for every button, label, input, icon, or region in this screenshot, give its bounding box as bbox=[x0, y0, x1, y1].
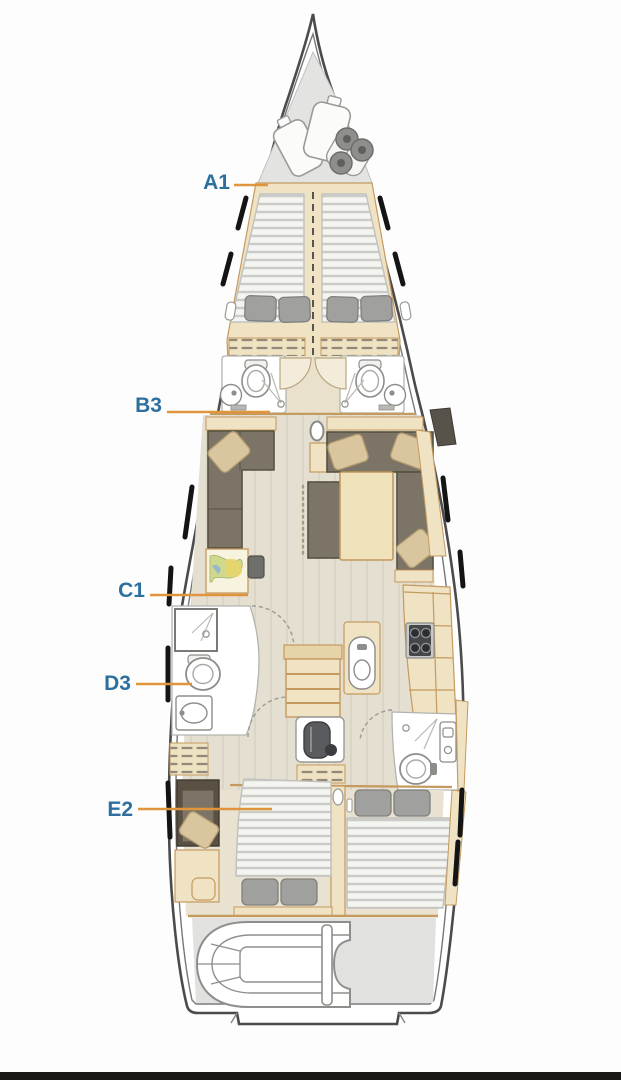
label-d3-text: D3 bbox=[104, 672, 131, 695]
companionway-landing bbox=[284, 645, 342, 659]
yacht-layout-page: A1 B3 C1 D3 E2 bbox=[0, 0, 621, 1080]
sideboard-top-left bbox=[206, 417, 276, 430]
pillow-port-2 bbox=[281, 879, 317, 905]
dinghy bbox=[197, 922, 350, 1007]
portlight bbox=[238, 198, 246, 228]
wet-locker-dark bbox=[430, 408, 456, 446]
portlight bbox=[455, 842, 458, 884]
label-c1-text: C1 bbox=[118, 579, 145, 602]
mast-post bbox=[311, 422, 324, 441]
portlight bbox=[169, 568, 171, 604]
side-cabinet bbox=[175, 850, 219, 902]
stern-step-right bbox=[399, 1013, 405, 1023]
dinghy-garage bbox=[192, 918, 436, 1007]
label-e2-text: E2 bbox=[107, 798, 133, 821]
salon-table bbox=[340, 472, 393, 560]
sideboard-top-right bbox=[327, 417, 423, 430]
port-slats-mid bbox=[170, 743, 208, 775]
dinette-seat-small bbox=[310, 443, 328, 472]
portlight bbox=[185, 487, 192, 537]
shower-grate-left bbox=[231, 405, 246, 410]
counter-right-of-head bbox=[456, 700, 468, 790]
sink-right bbox=[385, 385, 406, 406]
dinghy-transom bbox=[322, 925, 332, 1005]
pillow-stbd-2 bbox=[394, 790, 430, 816]
divider-fixture bbox=[333, 789, 343, 805]
engine-compartment bbox=[296, 717, 344, 762]
aft-cabins bbox=[175, 779, 466, 916]
dinette-bench-left bbox=[308, 482, 340, 558]
stove bbox=[406, 623, 434, 658]
pillow-stbd-1 bbox=[355, 790, 391, 816]
toilet-left bbox=[242, 360, 270, 397]
reading-light bbox=[347, 799, 352, 812]
portlight bbox=[460, 552, 463, 586]
dinghy-floor bbox=[240, 947, 332, 982]
galley-sink-unit bbox=[344, 622, 380, 694]
deck-hatch-right bbox=[399, 301, 411, 320]
bow-sail-locker bbox=[258, 52, 374, 183]
portlight bbox=[460, 790, 462, 835]
sink-aft bbox=[440, 722, 456, 762]
forward-heads bbox=[210, 356, 416, 414]
berth-mattress-starboard bbox=[347, 818, 452, 908]
chart-table bbox=[206, 549, 248, 593]
shower-grate-right bbox=[379, 405, 394, 410]
label-a1-text: A1 bbox=[203, 171, 230, 194]
dinette-shelf bbox=[395, 570, 433, 582]
sink-left bbox=[221, 385, 242, 406]
stern-step-left bbox=[231, 1013, 237, 1023]
portlight bbox=[395, 254, 403, 284]
portlight bbox=[380, 198, 388, 228]
companionway-slats bbox=[297, 765, 345, 783]
berth-mattress-port bbox=[236, 779, 331, 876]
portlight bbox=[223, 254, 231, 284]
sink-right-drain bbox=[389, 390, 394, 395]
foot-shelf bbox=[234, 907, 332, 916]
sink-midship bbox=[176, 696, 212, 730]
sink-left-drain bbox=[231, 390, 236, 395]
nav-seat bbox=[248, 556, 264, 578]
label-b3-text: B3 bbox=[135, 394, 162, 417]
boat-floor-plan: A1 B3 C1 D3 E2 bbox=[0, 0, 621, 1080]
toilet-right bbox=[356, 360, 384, 397]
pillow-port-1 bbox=[242, 879, 278, 905]
bottom-edge-bar bbox=[0, 1072, 621, 1080]
